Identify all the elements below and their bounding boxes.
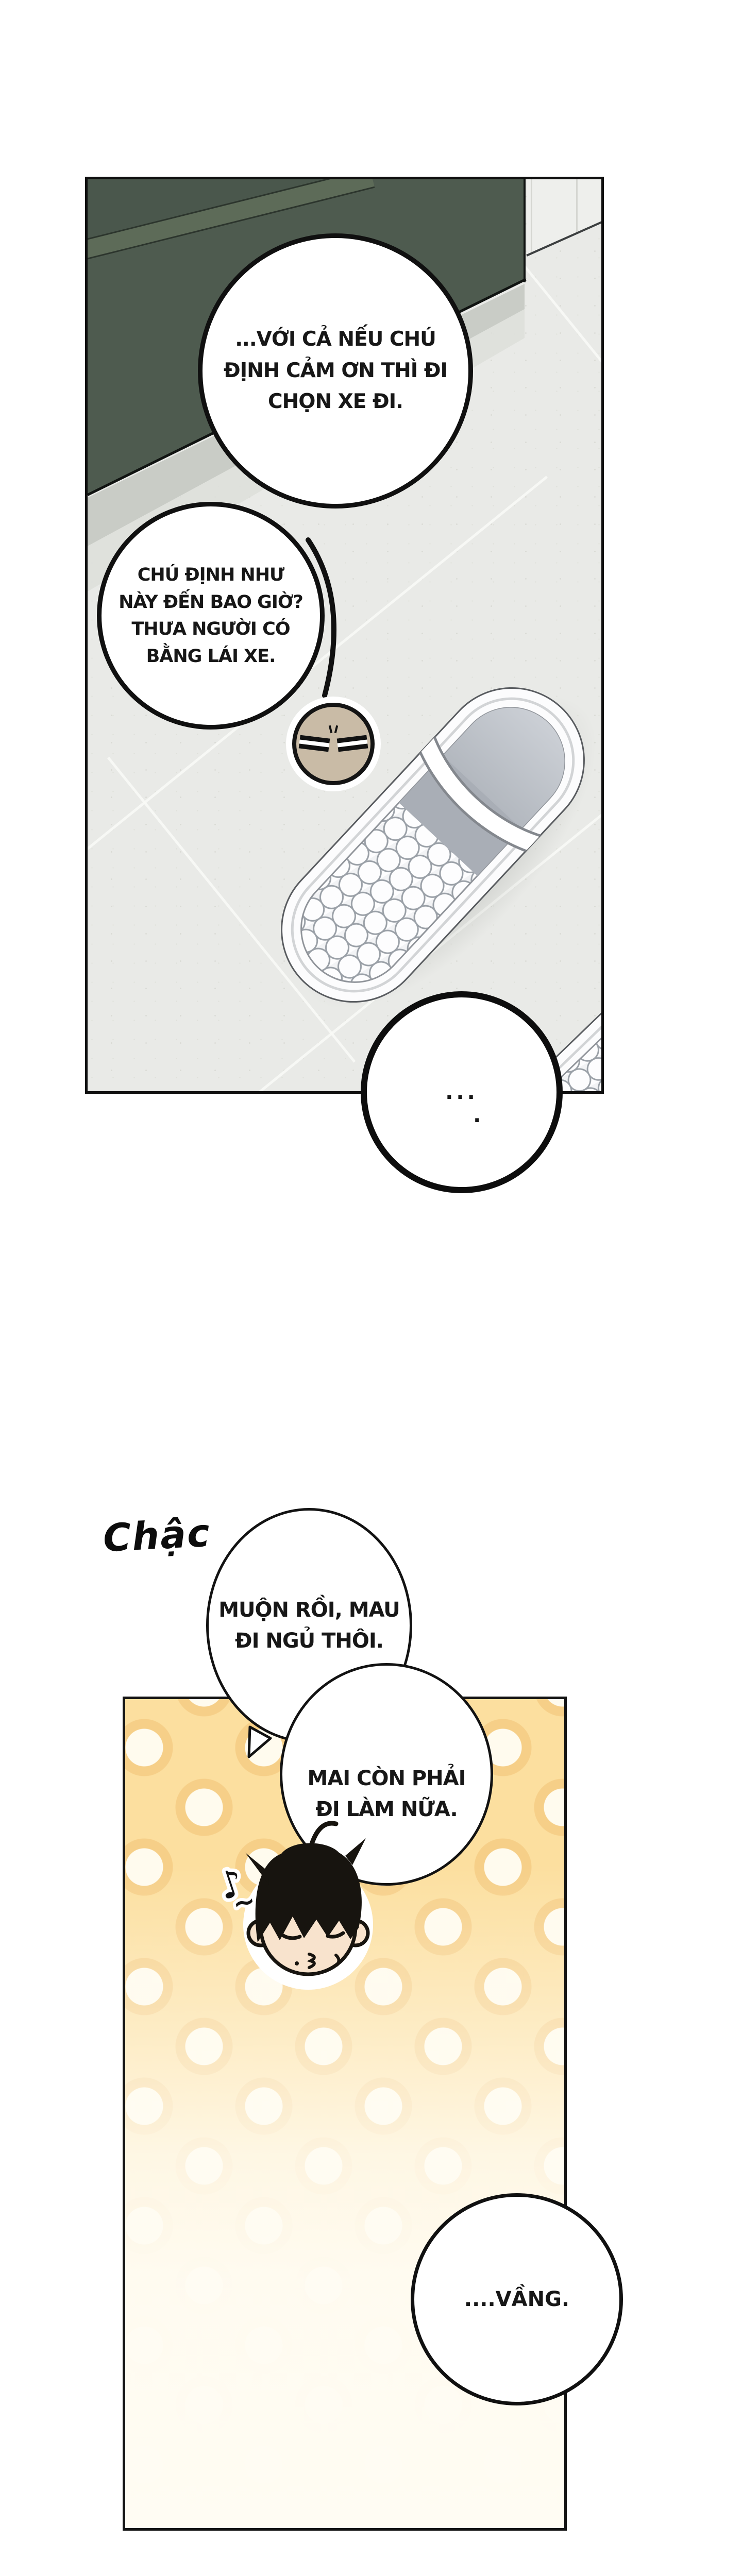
ellipsis-period: .: [473, 1104, 484, 1127]
bubble-text-line: CHỌN XE ĐI.: [268, 386, 403, 417]
character-head-annoyed: [292, 703, 375, 785]
bubble-text-line: THƯA NGƯỜI CÓ: [131, 616, 290, 643]
speech-bubble-silence: ... .: [361, 991, 563, 1193]
irritation-ticks-icon: [330, 725, 338, 733]
right-eye-icon: [337, 735, 368, 752]
ellipsis-text: ...: [445, 1080, 478, 1104]
squint-eyes-icon: [296, 737, 370, 750]
bubble-text-line: ĐỊNH CẢM ƠN THÌ ĐI: [224, 355, 447, 386]
bubble-text-line: CHÚ ĐỊNH NHƯ: [138, 562, 284, 589]
mouth-dot: [295, 1961, 299, 1965]
bubble-text-line: BẰNG LÁI XE.: [146, 643, 276, 670]
panel-kitchen: ...VỚI CẢ NẾU CHÚ ĐỊNH CẢM ƠN THÌ ĐI CHỌ…: [85, 177, 604, 1094]
speech-bubble-choose-car: ...VỚI CẢ NẾU CHÚ ĐỊNH CẢM ƠN THÌ ĐI CHỌ…: [198, 233, 473, 509]
speech-bubble-license: CHÚ ĐỊNH NHƯ NÀY ĐẾN BAO GIỜ? THƯA NGƯỜI…: [97, 502, 325, 730]
bubble-text-line: NÀY ĐẾN BAO GIỜ?: [119, 589, 303, 616]
sleeping-head-art: ♪ ~: [123, 1489, 567, 2159]
hair-strand: [311, 1823, 336, 1845]
bubble-text-line: ...VỚI CẢ NẾU CHÚ: [235, 324, 436, 355]
left-eye-icon: [299, 735, 330, 752]
comic-page: ...VỚI CẢ NẾU CHÚ ĐỊNH CẢM ƠN THÌ ĐI CHỌ…: [0, 0, 742, 2576]
bubble-text-line: ....VẦNG.: [464, 2287, 569, 2311]
speech-bubble-reply: ....VẦNG.: [411, 2193, 623, 2405]
